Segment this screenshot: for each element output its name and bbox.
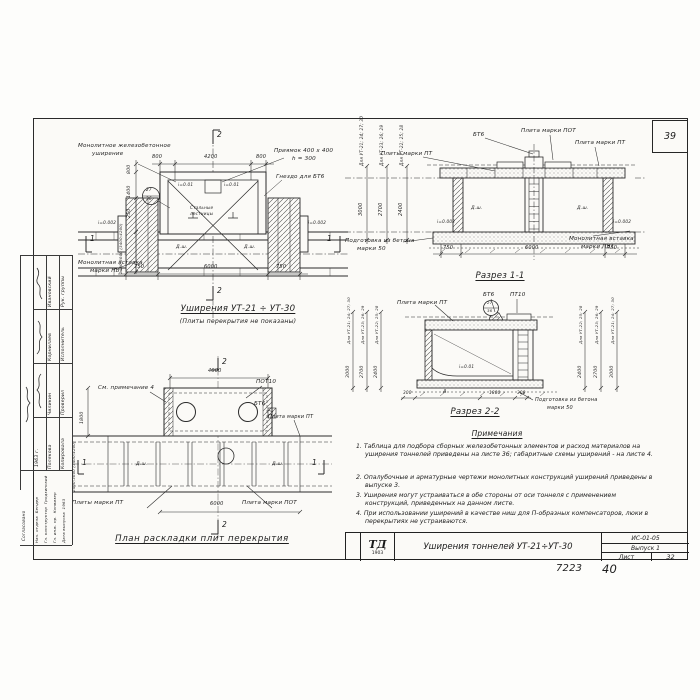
- fig2-dim-left-label-0: Для УТ-21; 24; 27; 30: [360, 120, 365, 166]
- titleblock-sheet-number: 32: [651, 552, 689, 561]
- fig4-dsh-left: Д.ш.: [136, 462, 148, 467]
- fig3-dim-left-label-0: Для УТ-21; 24; 27; 30: [347, 292, 351, 344]
- sidebar-role-2: Исполнитель: [61, 313, 66, 361]
- fig1-dsh-right: Д.ш.: [244, 245, 256, 250]
- fig2-section-1-1: Плиты марки ПТ БТ6 Плита марки ПОТ Плита…: [345, 120, 645, 298]
- signature-sidebar: Рук. группы Ивановский Исполнитель Корни…: [20, 255, 72, 545]
- logo-year: 1903: [372, 551, 383, 556]
- fig1-widening-plan: Монолитное железобетонное уширение Приям…: [78, 124, 348, 336]
- fig1-slope-label-a: i=0.01: [178, 183, 193, 188]
- titleblock-logo: ТД 1903: [360, 533, 394, 561]
- fig3-dim-bottom-1: А: [443, 390, 447, 396]
- sidebar-divider: [20, 470, 72, 471]
- corner-sheet-number: 39: [652, 120, 688, 153]
- fig1-section1-marker-left: 1: [90, 235, 95, 244]
- sidebar-divider: [33, 363, 72, 364]
- sidebar-name-1: Ивановский: [48, 259, 53, 307]
- fig1-dim-left-1: 1400: [127, 176, 132, 198]
- fig3-dim-right-label-1: Для УТ-23; 26; 29: [595, 292, 599, 344]
- sidebar-name-4: Полякова: [48, 421, 53, 469]
- fig1-dim-top-2: 800: [256, 155, 266, 161]
- titleblock-sheet-label: Лист: [601, 552, 651, 561]
- fig3-dim-right-label-2: Для УТ-21; 24; 27; 30: [611, 292, 615, 344]
- fig2-bt6-label: БТ6: [473, 132, 484, 138]
- fig1-detail-ref-top: 27: [146, 188, 152, 193]
- fig4-dim-bottom: 6000: [210, 502, 224, 508]
- fig2-slope-left: i=0.002: [437, 220, 455, 225]
- fig3-dim-bottom-3: 300: [517, 391, 526, 396]
- fig4-dim-top: 4000: [208, 369, 222, 375]
- fig3-dim-left-value-1: 2700: [360, 348, 365, 378]
- fig3-title: Разрез 2-2: [420, 408, 530, 418]
- fig2-prep-label-2: марки 50: [357, 246, 386, 252]
- sidebar-role-1: Рук. группы: [61, 259, 66, 307]
- sidebar-official-2: Гл. конструктор Гродзинский: [44, 476, 48, 543]
- fig3-dim-left-value-2: 2400: [374, 348, 379, 378]
- fig4-section1-marker-right: 1: [312, 459, 317, 468]
- notes-block: Примечания 1. Таблица для подбора сборны…: [352, 430, 648, 528]
- fig2-title: Разрез 1-1: [440, 272, 560, 282]
- fig1-section2-marker-bottom: 2: [217, 287, 222, 296]
- title-block: ТД 1903 Уширения тоннелей УТ-21÷УТ-30 ИС…: [345, 532, 688, 560]
- fig1-dsh-left: Д.ш.: [176, 245, 188, 250]
- fig4-dim-left: 1800: [80, 402, 85, 424]
- sidebar-official-3: Гл. инж. пр. Конвизер: [53, 476, 57, 543]
- note-item-4: 4. При использовании уширений в качестве…: [356, 510, 655, 526]
- fig1-dim-top-1: 4200: [204, 155, 218, 161]
- sidebar-divider: [33, 417, 72, 418]
- fig1-slope-edge-left: i=0.002: [98, 221, 116, 226]
- fig4-title: План раскладки плит перекрытия: [97, 535, 307, 545]
- titleblock-issue: Выпуск 1: [601, 543, 689, 552]
- titleblock-doc-code: ИС-01-05: [601, 533, 689, 543]
- fig2-insert-label-1: Монолитная вставка: [569, 236, 634, 242]
- footer-page-number: 40: [602, 562, 617, 576]
- fig1-section2-marker-top: 2: [217, 131, 222, 140]
- fig2-dim-left-value-2: 2400: [399, 188, 405, 216]
- fig4-dsh-right: Д.ш.: [272, 462, 284, 467]
- fig2-slope-right: i=0.002: [613, 220, 631, 225]
- fig3-bt6-label: БТ6: [483, 292, 494, 298]
- fig1-subtitle: (Плиты перекрытия не показаны): [138, 318, 338, 325]
- fig4-pt-plates-label: Плиты марки ПТ: [72, 500, 123, 506]
- fig3-dim-bottom-0: 300: [403, 391, 412, 396]
- fig3-dim-right-label-0: Для УТ-22; 25; 28: [579, 292, 583, 344]
- fig1-pit-label-1: Приямок 400 х 400: [274, 148, 333, 154]
- fig4-note-ref-label: См. примечание 4: [98, 385, 154, 391]
- fig3-pt-label: Плита марки ПТ: [397, 300, 447, 306]
- signature-scribble: [34, 371, 45, 411]
- fig1-pit-label-2: h = 300: [292, 156, 316, 162]
- logo-td-monogram: ТД: [369, 538, 387, 551]
- fig2-dsh-left: Д.ш.: [471, 206, 483, 211]
- fig3-dim-right-value-1: 2700: [594, 348, 599, 378]
- signature-scribble: [34, 317, 45, 357]
- signature-scribble: [22, 385, 33, 425]
- fig4-section2-marker-top: 2: [222, 358, 227, 367]
- fig1-detail-ref-bottom: 36: [146, 197, 152, 202]
- note-item-1: 1. Таблица для подбора сборных железобет…: [356, 443, 655, 459]
- fig2-pt-plates-label: Плиты марки ПТ: [381, 151, 432, 157]
- fig1-dim-bottom-1: 6000: [204, 265, 218, 271]
- fig1-widening-label-1: Монолитное железобетонное: [78, 143, 171, 149]
- fig1-slope-edge-right: i=0.002: [308, 221, 326, 226]
- fig2-pot-label: Плита марки ПОТ: [521, 128, 576, 134]
- sidebar-divider: [20, 255, 72, 256]
- sidebar-divider: [72, 255, 73, 545]
- fig1-widening-label-2: уширение: [92, 151, 123, 157]
- fig1-section1-marker-right: 1: [327, 235, 332, 244]
- fig1-dim-bottom-0: 750: [134, 265, 144, 271]
- drawing-sheet-page: { "page": { "corner_number": "39", "foot…: [0, 0, 700, 700]
- fig2-dim-bottom-1: 6000: [525, 246, 539, 252]
- footer-stamp-code: 7223: [556, 563, 582, 574]
- fig3-dim-left-label-1: Для УТ-23; 26; 29: [361, 292, 365, 344]
- note-item-2: 2. Опалубочные и арматурные чертежи моно…: [356, 474, 655, 490]
- fig4-section2-marker-bottom: 2: [222, 521, 227, 530]
- fig1-title: Уширения УТ-21 ÷ УТ-30: [138, 305, 338, 315]
- signature-scribble: [34, 263, 45, 303]
- fig3-section-2-2: Плита марки ПТ БТ6 ПТ10 27 36 i=0.01 Для…: [345, 292, 645, 432]
- fig1-dim-bottom-2: 750: [276, 265, 286, 271]
- fig3-dim-right-value-2: 3000: [610, 348, 615, 378]
- fig2-insert-label-2: марки ПВТ: [581, 244, 614, 250]
- fig1-slope-label-b: i=0.01: [224, 183, 239, 188]
- fig2-dim-left-value-1: 2700: [379, 188, 385, 216]
- fig4-pot-label: Плита марки ПОТ: [242, 500, 297, 506]
- fig4-pot10-label: ПОТ10: [256, 379, 276, 385]
- fig1-dim-left-2: 250: [127, 202, 132, 218]
- sidebar-agreed-label: Согласовано: [22, 477, 27, 541]
- fig3-detail-ref-bottom: 36: [487, 309, 492, 313]
- sidebar-divider: [20, 255, 21, 490]
- fig2-pt-label: Плита марки ПТ: [575, 140, 625, 146]
- fig3-dim-left-label-2: Для УТ-22; 25; 28: [375, 292, 379, 344]
- sidebar-role-3: Проверил: [61, 367, 66, 415]
- fig2-prep-label-1: Подготовка из бетона: [345, 238, 414, 244]
- sidebar-divider: [33, 309, 72, 310]
- fig1-ladders-label-2: лестницы: [190, 212, 213, 217]
- fig4-pt-label: Плита марки ПТ: [268, 415, 313, 421]
- notes-header: Примечания: [412, 430, 582, 439]
- sidebar-role-4: Копировала: [61, 421, 66, 469]
- fig3-prep-label-2: марки 50: [547, 406, 573, 412]
- fig3-slope-label: i=0.01: [459, 365, 474, 370]
- fig2-dsh-right: Д.ш.: [577, 206, 589, 211]
- sidebar-official-1: Нач. отдела Бендер: [35, 476, 39, 543]
- sidebar-name-2: Корнилаев: [48, 313, 53, 361]
- titleblock-spare-cell: [346, 533, 360, 561]
- fig2-dim-left-value-0: 3000: [359, 188, 365, 216]
- sidebar-name-3: Чиликин: [48, 367, 53, 415]
- fig4-slab-plan: См. примечание 4 ПОТ10 БТ6 Плита марки П…: [72, 352, 332, 548]
- sidebar-official-4: Дата выпуска 1963: [62, 476, 66, 543]
- fig3-dim-bottom-2: 1800: [489, 391, 500, 396]
- fig3-dim-right-value-0: 2400: [578, 348, 583, 378]
- titleblock-title: Уширения тоннелей УТ-21÷УТ-30: [394, 533, 601, 561]
- fig1-dim-top-0: 800: [152, 155, 162, 161]
- fig3-dim-left-value-0: 3000: [346, 348, 351, 378]
- sidebar-divider: [20, 545, 72, 546]
- fig2-dim-left-label-2: Для УТ-22; 25; 28: [400, 120, 405, 166]
- sidebar-year: 1963 г.: [35, 433, 40, 467]
- fig3-prep-label-1: Подготовка из бетона: [535, 398, 598, 404]
- fig4-bt6-label: БТ6: [254, 401, 265, 407]
- fig1-socket-label: Гнездо для БТ6: [276, 174, 324, 180]
- fig3-pt10-label: ПТ10: [510, 292, 526, 298]
- fig3-detail-ref-top: 27: [487, 301, 492, 305]
- fig4-section1-marker-left: 1: [82, 459, 87, 468]
- fig4-linework: [72, 352, 332, 548]
- fig1-dim-left-rotated: 2400;3000 (3400;4200): [119, 216, 123, 274]
- fig1-dim-left-0: 800: [127, 160, 132, 174]
- fig2-dim-bottom-0: 750: [443, 246, 453, 252]
- note-item-3: 3. Уширения могут устраиваться в обе сто…: [356, 492, 655, 508]
- fig2-dim-left-label-1: Для УТ-23; 26; 29: [380, 120, 385, 166]
